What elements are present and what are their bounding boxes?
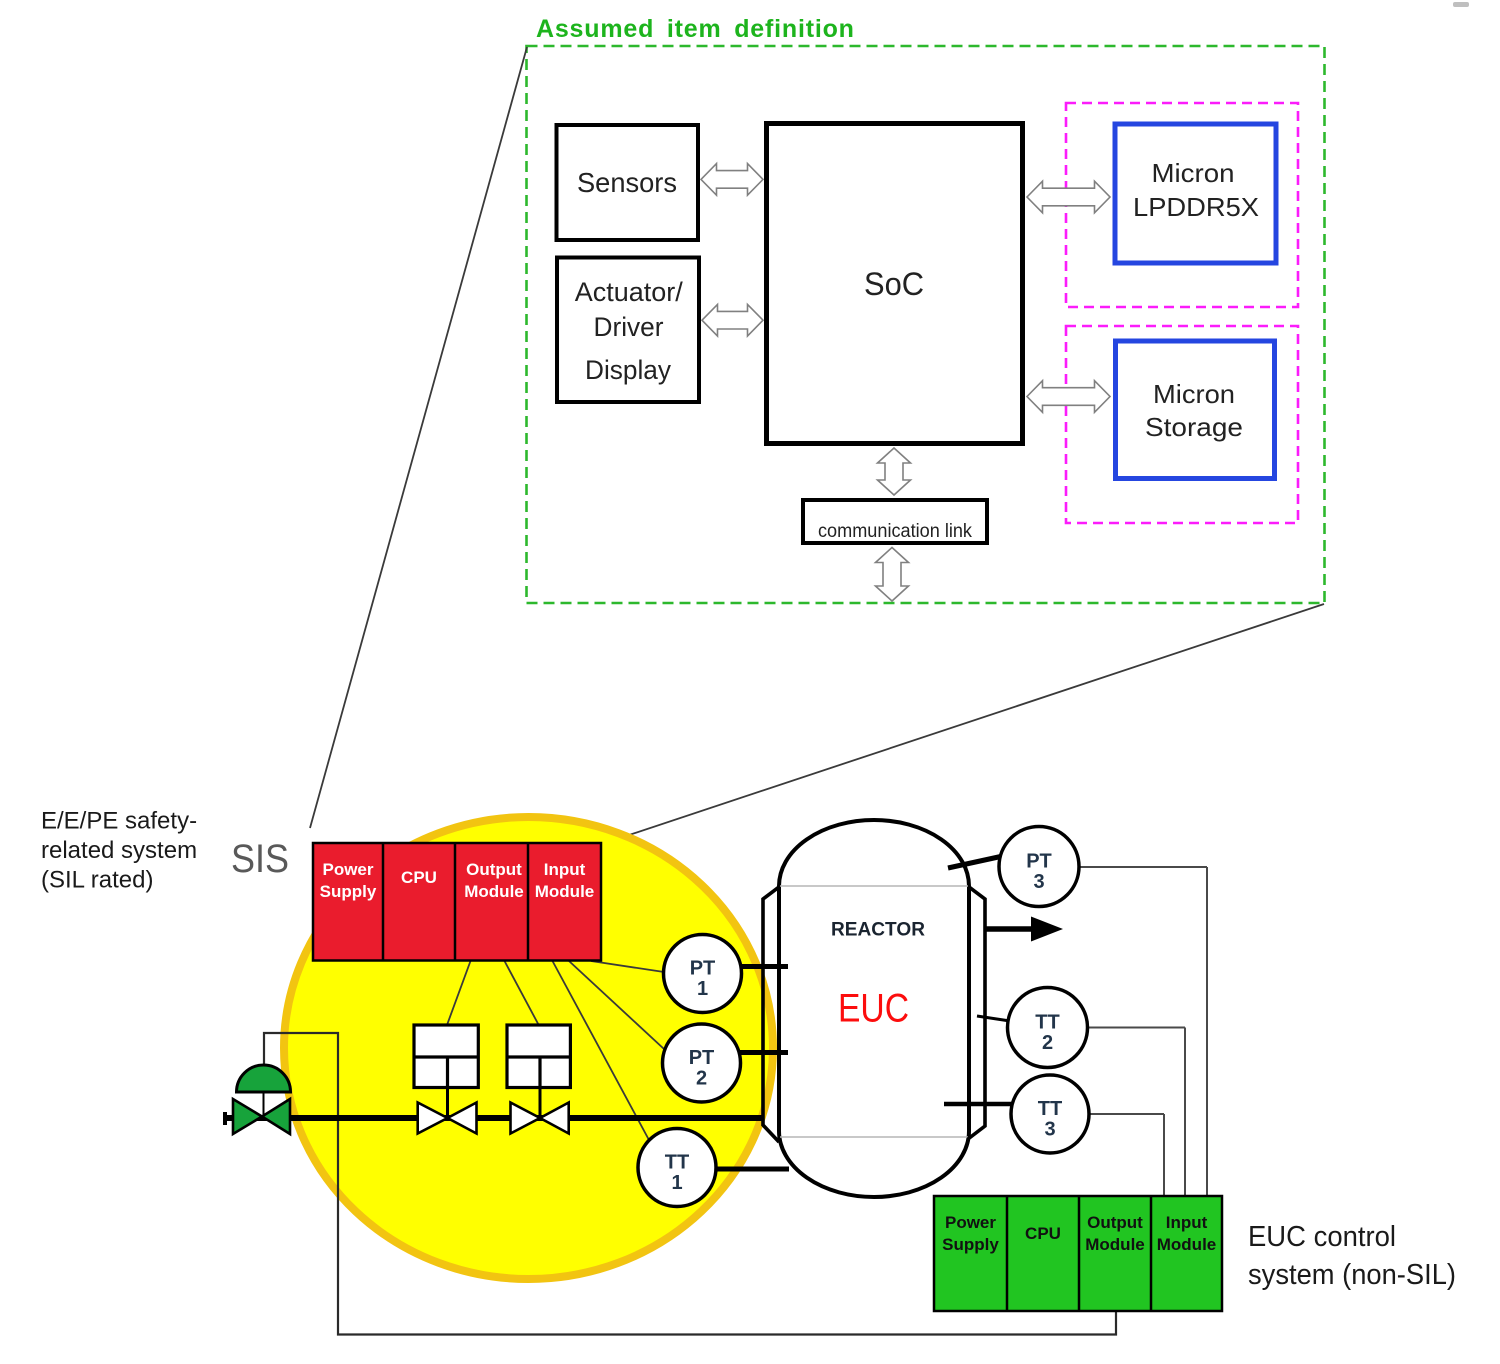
svg-text:SoC: SoC xyxy=(864,266,924,302)
svg-text:Module: Module xyxy=(1085,1235,1145,1254)
svg-text:2: 2 xyxy=(696,1068,707,1090)
svg-text:Module: Module xyxy=(1157,1235,1217,1254)
svg-text:Actuator/: Actuator/ xyxy=(575,277,683,307)
svg-text:Sensors: Sensors xyxy=(577,167,677,198)
svg-text:PT: PT xyxy=(689,1047,715,1069)
svg-text:Input: Input xyxy=(1166,1213,1208,1232)
svg-text:communication link: communication link xyxy=(818,521,972,542)
svg-text:3: 3 xyxy=(1044,1119,1055,1141)
svg-text:TT: TT xyxy=(665,1152,689,1174)
svg-text:Module: Module xyxy=(535,882,595,901)
svg-text:Power: Power xyxy=(945,1213,996,1232)
svg-text:Supply: Supply xyxy=(320,882,377,901)
svg-text:Micron: Micron xyxy=(1152,158,1235,188)
svg-text:Power: Power xyxy=(322,860,373,879)
svg-text:LPDDR5X: LPDDR5X xyxy=(1133,192,1259,222)
svg-text:Module: Module xyxy=(464,882,524,901)
svg-text:related system: related system xyxy=(41,837,197,864)
svg-text:REACTOR: REACTOR xyxy=(831,920,925,941)
svg-text:3: 3 xyxy=(1033,871,1044,893)
svg-text:Assumed item definition: Assumed item definition xyxy=(536,15,855,43)
svg-text:Storage: Storage xyxy=(1145,412,1243,442)
svg-text:(SIL rated): (SIL rated) xyxy=(41,867,154,894)
svg-text:TT: TT xyxy=(1038,1098,1062,1120)
svg-text:Supply: Supply xyxy=(942,1235,999,1254)
svg-text:1: 1 xyxy=(671,1172,682,1194)
svg-text:SIS: SIS xyxy=(231,837,289,881)
svg-text:Output: Output xyxy=(1087,1213,1143,1232)
svg-text:PT: PT xyxy=(690,958,716,980)
svg-text:TT: TT xyxy=(1035,1012,1059,1034)
svg-text:EUC: EUC xyxy=(838,987,909,1031)
svg-text:PT: PT xyxy=(1026,851,1052,873)
svg-text:Display: Display xyxy=(585,355,671,385)
svg-text:EUC control: EUC control xyxy=(1248,1221,1396,1253)
svg-text:CPU: CPU xyxy=(401,868,437,887)
svg-text:Micron: Micron xyxy=(1153,379,1235,409)
svg-text:Output: Output xyxy=(466,860,522,879)
svg-text:Driver: Driver xyxy=(594,312,664,342)
svg-text:CPU: CPU xyxy=(1025,1224,1061,1243)
svg-text:E/E/PE safety-: E/E/PE safety- xyxy=(41,808,197,835)
svg-text:system (non-SIL): system (non-SIL) xyxy=(1248,1259,1456,1291)
svg-text:2: 2 xyxy=(1042,1032,1053,1054)
svg-text:Input: Input xyxy=(544,860,586,879)
svg-text:1: 1 xyxy=(697,978,708,1000)
